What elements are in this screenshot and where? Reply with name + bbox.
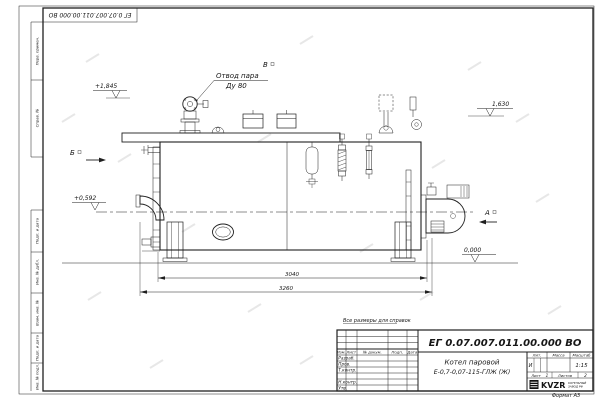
view-v-label: В: [263, 61, 268, 69]
margin-cell-podp-data-2: Подп. и дата: [35, 334, 40, 361]
lit-header: Лит.: [532, 353, 542, 358]
lit-value: И: [529, 363, 533, 369]
col-list: Лист: [345, 350, 356, 355]
sheet-header: Лист: [530, 373, 541, 378]
elevation-mark-axis: +0,592: [72, 195, 106, 210]
dim-inner-value: 3040: [285, 272, 299, 278]
lifting-lugs: [212, 112, 393, 133]
steam-outlet-valve: [180, 97, 208, 133]
scale-value: 1:15: [575, 363, 588, 369]
sheet-value: 1: [546, 373, 549, 378]
company-logo: KVZR КОТЕЛЬНЫЙ ЗАВОД РФ: [530, 380, 588, 390]
watermark-marks: [62, 36, 561, 368]
steam-outlet-callout: Отвод пара Ду 80: [196, 72, 269, 102]
row-utv: Утв.: [338, 386, 347, 391]
manhole: [213, 224, 234, 240]
margin-column: Перв. примен. Справ. № Подп. и дата Инв.…: [31, 22, 43, 391]
row-prov: Пров.: [338, 362, 350, 367]
elev-valve-value: +1,845: [95, 83, 117, 90]
margin-cell-podp-data-1: Подп. и дата: [35, 217, 40, 244]
elevation-mark-valve: +1,845: [93, 83, 130, 98]
support-legs: [163, 222, 415, 262]
titleblock-designation: ЕГ 0.07.007.011.00.000 ВО: [429, 338, 582, 349]
sheet-frame: [19, 6, 594, 394]
product-name: Котел паровой: [445, 359, 500, 367]
sheets-value: 2: [584, 373, 587, 378]
format-note: Формат А3: [552, 393, 580, 399]
top-designation-text: ЕГ 0.07.007.011.00.000 ВО: [48, 11, 131, 18]
row-nkontr: Н.контр.: [338, 380, 357, 385]
steam-outlet-label-1: Отвод пара: [216, 72, 259, 80]
dimensions: 3040 3260: [140, 222, 432, 296]
view-a-label: А: [484, 209, 490, 217]
boiler-shell: [153, 142, 421, 250]
margin-cell-vzam-inv: Взам. инв. №: [35, 300, 40, 326]
col-sign: Подп.: [392, 350, 404, 355]
top-hatches: [243, 110, 296, 128]
view-arrow-a-right: А: [479, 209, 497, 224]
view-b-label: Б: [70, 149, 75, 157]
mass-header: Масса: [552, 353, 565, 358]
reference-note: Все размеры для справок: [343, 318, 411, 324]
company-logo-text: KVZR: [541, 381, 565, 390]
margin-cell-inv-podl: Инв. № подл.: [35, 364, 40, 390]
safety-valve-lever: [410, 97, 422, 130]
drawing-sheet: Перв. примен. Справ. № Подп. и дата Инв.…: [0, 0, 600, 400]
boiler-general-view-drawing: Перв. примен. Справ. № Подп. и дата Инв.…: [0, 0, 600, 400]
row-razrab: Разраб.: [338, 356, 354, 361]
dashed-connection-box: [379, 95, 393, 111]
col-date: Дата: [406, 350, 418, 355]
elev-axis-value: +0,592: [74, 195, 96, 202]
annotations: Отвод пара Ду 80 Б В А +1,845: [70, 61, 513, 262]
top-designation-box: ЕГ 0.07.007.011.00.000 ВО: [43, 8, 137, 22]
boiler-side-view: [62, 95, 518, 263]
col-izm: Изм.: [337, 350, 346, 355]
margin-cell-inv-dubl: Инв. № дубл.: [35, 259, 40, 285]
row-tkontr: Т.контр.: [338, 368, 356, 373]
margin-cell-perv-primen: Перв. примен.: [35, 37, 40, 66]
elev-ground-value: 0,000: [464, 247, 481, 254]
dim-outer-value: 3260: [279, 286, 293, 292]
title-block: Все размеры для справок ЕГ 0.07.007.011.…: [337, 318, 593, 391]
top-platform: [122, 133, 340, 142]
company-line2: ЗАВОД РФ: [568, 385, 584, 389]
elevation-mark-drum: 1,630: [468, 101, 513, 116]
view-arrow-v-top: В: [263, 61, 274, 69]
scale-header: Масштаб: [572, 353, 591, 358]
burner-assembly: [421, 183, 469, 238]
elev-drum-value: 1,630: [492, 101, 509, 108]
view-arrow-b-left: Б: [70, 149, 106, 162]
elevation-mark-ground: 0,000: [462, 247, 496, 262]
sheets-header: Листов: [557, 373, 573, 378]
product-type: Е-0,7-0,07-115-ГЛЖ (Ж): [434, 369, 511, 376]
col-doc: № докум.: [362, 350, 382, 355]
margin-cell-sprav-no: Справ. №: [35, 109, 40, 128]
steam-outlet-label-2: Ду 80: [225, 82, 247, 90]
